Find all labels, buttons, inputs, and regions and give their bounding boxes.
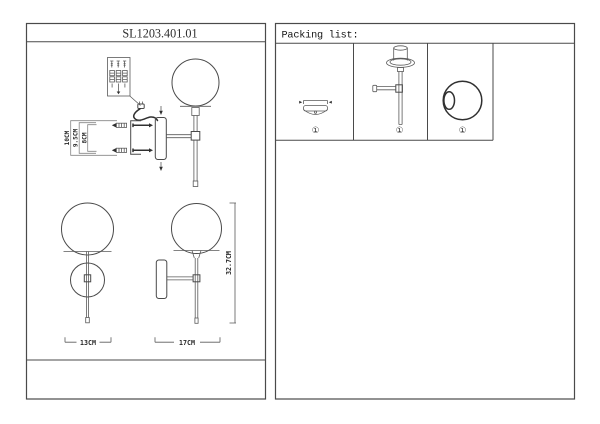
packing-panel: Packing list: ① [276,24,575,400]
dim-13cm: 13CM [80,339,96,347]
dim-17cm: 17CM [179,339,195,347]
packing-list-header: Packing list: [282,30,359,42]
dim-8cm: 8CM [81,132,88,143]
dim-10cm: 10CM [64,130,71,145]
qty-badge: ① [459,126,467,136]
left-panel-border [27,24,266,400]
model-number: SL1203.401.01 [122,26,197,40]
qty-badge: ① [396,126,404,136]
left-panel: SL1203.401.01 [27,24,266,400]
spec-sheet-canvas: SL1203.401.01 [0,0,600,424]
dim-32-7cm: 32.7CM [225,251,233,275]
qty-badge: ① [312,126,320,136]
dim-9-5cm: 9.5CM [73,128,80,147]
packing-panel-border [276,24,575,400]
spec-sheet: SL1203.401.01 [0,0,600,424]
